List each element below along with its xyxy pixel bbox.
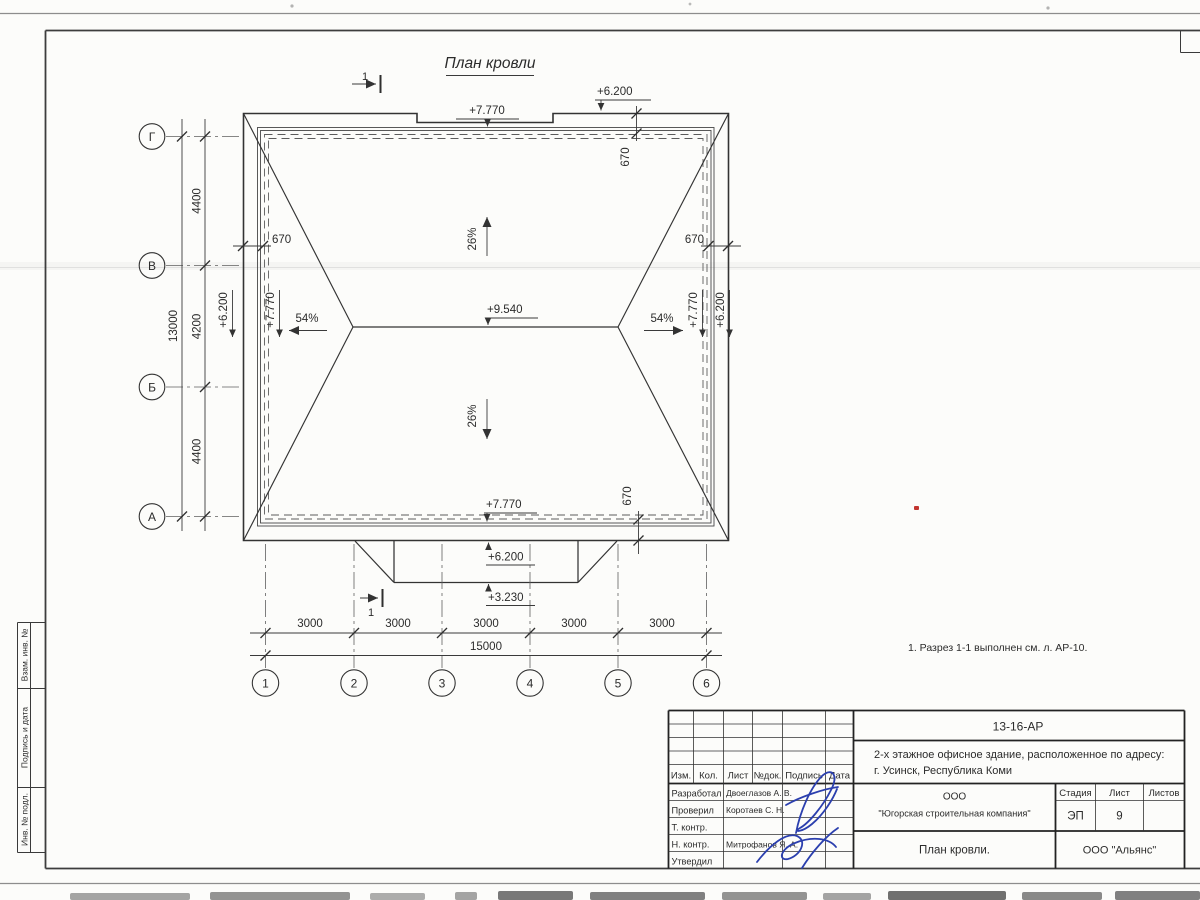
drawing-name: План кровли. — [919, 845, 990, 857]
axis-number-4: 4 — [527, 677, 534, 691]
dim-bottom-1: 3000 — [297, 618, 323, 630]
overhang-dim-mid-right: 670 — [685, 234, 741, 251]
overhang-label: 670 — [620, 147, 632, 166]
org-name: ООО "Альянс" — [1083, 845, 1157, 857]
elevation-marks: +7.770 +6.200 +9.540 +7.770 +6.200 +3.23… — [218, 86, 730, 606]
axis-number-2: 2 — [351, 677, 358, 691]
svg-text:+6.200: +6.200 — [488, 552, 524, 564]
axis-bubbles-left: Г В Б А — [139, 124, 165, 530]
strip-label-vzam: Взам. инв. № — [20, 629, 30, 682]
overhang-dim-top-right: 670 — [620, 106, 642, 167]
elev-bottom-eave: +7.770 — [484, 499, 537, 522]
svg-text:+7.770: +7.770 — [688, 292, 700, 328]
overhang-dim-top-left: 670 — [233, 234, 291, 251]
elev-right-canopy: +6.200 — [715, 290, 730, 337]
title-block: 13-16-АР 2-х этажное офисное здание, рас… — [669, 711, 1185, 869]
hip-top-right — [618, 114, 729, 328]
name-checked: Коротаев С. Н. — [726, 805, 784, 815]
sheet-note: 1. Разрез 1-1 выполнен см. л. АР-10. — [908, 642, 1087, 654]
elev-left-eave: +7.770 — [265, 290, 280, 337]
section-mark-top: 1 — [352, 71, 381, 93]
svg-text:+3.230: +3.230 — [488, 592, 524, 604]
svg-text:+6.200: +6.200 — [715, 292, 727, 328]
role-checked: Проверил — [672, 806, 714, 816]
svg-text:+9.540: +9.540 — [487, 304, 523, 316]
dim-bottom-total: 15000 — [470, 641, 502, 653]
axis-number-5: 5 — [615, 677, 622, 691]
company-line2: "Югорская строительная компания" — [878, 809, 1030, 819]
slope-bottom: 26% — [467, 399, 487, 439]
overhang-label: 670 — [622, 486, 634, 505]
red-speck — [914, 506, 919, 510]
sheet-value: 9 — [1116, 811, 1122, 823]
axis-number-1: 1 — [262, 677, 269, 691]
hip-top-left — [244, 114, 354, 328]
svg-text:26%: 26% — [467, 404, 479, 427]
svg-text:+7.770: +7.770 — [486, 499, 522, 511]
stage-label: Стадия — [1059, 788, 1091, 799]
axis-number-6: 6 — [703, 677, 710, 691]
role-tcontrol: Т. контр. — [672, 823, 708, 833]
strip-label-podpis: Подпись и дата — [20, 707, 30, 768]
overhang-label: 670 — [685, 234, 704, 246]
axis-bubbles-bottom: 1 2 3 4 5 6 — [252, 670, 719, 696]
elev-left-canopy: +6.200 — [218, 290, 233, 337]
dim-left-total: 13000 — [168, 310, 180, 342]
strip-label-inv: Инв. № подл. — [20, 793, 30, 846]
svg-text:+6.200: +6.200 — [218, 292, 230, 328]
svg-text:+7.770: +7.770 — [469, 105, 505, 117]
section-mark-bottom: 1 — [360, 589, 383, 619]
svg-text:26%: 26% — [467, 227, 479, 250]
slope-right: 54% — [644, 313, 683, 331]
project-line1: 2-х этажное офисное здание, расположенно… — [874, 749, 1164, 761]
overhang-label: 670 — [272, 234, 291, 246]
roof-plan — [244, 114, 729, 583]
col-header-izm: Изм. — [671, 771, 691, 782]
dim-left-3: 4400 — [192, 439, 204, 465]
sheet-label: Лист — [1109, 788, 1130, 799]
axis-number-3: 3 — [439, 677, 446, 691]
dimensions: 13000 4400 4200 4400 3000 3000 3000 3000… — [168, 106, 741, 661]
overhang-dim-bottom-right: 670 — [622, 486, 644, 554]
elev-top-canopy: +6.200 — [595, 86, 651, 111]
slope-top: 26% — [467, 217, 487, 256]
axis-letter-v: В — [148, 259, 156, 273]
name-developed: Двоеглазов А. В. — [726, 788, 792, 798]
svg-text:+7.770: +7.770 — [265, 292, 277, 328]
elev-ridge: +9.540 — [485, 304, 538, 325]
svg-text:+6.200: +6.200 — [597, 86, 633, 98]
dim-left-1: 4400 — [192, 188, 204, 214]
drawing-title: План кровли — [445, 55, 536, 72]
col-header-kol: Кол. — [699, 771, 718, 782]
hip-bottom-right — [618, 327, 729, 541]
doc-number: 13-16-АР — [993, 720, 1044, 734]
bottom-scan-smudges — [70, 891, 1200, 900]
drawing-title-group: План кровли — [445, 55, 536, 76]
role-approved: Утвердил — [672, 857, 713, 867]
axis-letter-b: Б — [148, 381, 156, 395]
svg-text:1: 1 — [368, 607, 374, 619]
dim-bottom-4: 3000 — [561, 618, 587, 630]
col-header-ndok: №док. — [754, 771, 782, 782]
axis-grid: 1 2 3 4 5 6 Г В Б А — [139, 124, 720, 697]
section-marks: 1 1 — [352, 71, 383, 619]
elev-canopy-top: +6.200 — [486, 543, 535, 566]
company-line1: ООО — [943, 792, 967, 803]
col-header-podpis: Подпись — [785, 771, 823, 782]
entrance-canopy — [355, 541, 617, 583]
axis-letter-a: А — [148, 510, 156, 524]
svg-text:1: 1 — [362, 71, 368, 83]
side-strip: Взам. инв. № Подпись и дата Инв. № подл. — [18, 623, 46, 853]
col-header-list: Лист — [728, 771, 749, 782]
axis-letter-g: Г — [149, 130, 156, 144]
svg-text:54%: 54% — [650, 313, 673, 325]
role-developed: Разработал — [672, 789, 722, 799]
dim-bottom-5: 3000 — [649, 618, 675, 630]
dim-bottom-3: 3000 — [473, 618, 499, 630]
project-line2: г. Усинск, Республика Коми — [874, 765, 1012, 777]
dim-left-2: 4200 — [192, 314, 204, 340]
slope-marks: 26% 26% 54% 54% — [289, 217, 683, 439]
hip-bottom-left — [244, 327, 354, 541]
scan-artifacts — [0, 3, 1200, 510]
slope-left: 54% — [289, 313, 327, 331]
scanned-blueprint-sheet: Взам. инв. № Подпись и дата Инв. № подл.… — [0, 0, 1200, 900]
signature-bottom-stroke — [802, 828, 838, 868]
elev-right-eave: +7.770 — [688, 290, 703, 337]
elev-canopy-edge: +3.230 — [486, 584, 535, 606]
svg-text:54%: 54% — [295, 313, 318, 325]
dim-bottom-2: 3000 — [385, 618, 411, 630]
roof-plan-svg: Взам. инв. № Подпись и дата Инв. № подл.… — [0, 0, 1200, 900]
stage-value: ЭП — [1067, 811, 1084, 823]
role-ncontrol: Н. контр. — [672, 840, 710, 850]
sheets-label: Листов — [1149, 788, 1180, 799]
